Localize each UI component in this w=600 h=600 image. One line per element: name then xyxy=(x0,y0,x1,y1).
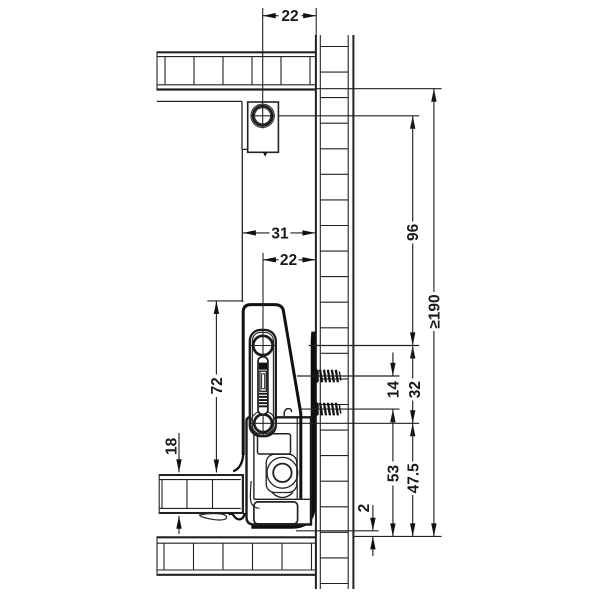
svg-text:53: 53 xyxy=(385,465,402,483)
svg-text:22: 22 xyxy=(281,8,298,25)
svg-text:18: 18 xyxy=(164,437,181,455)
svg-text:96: 96 xyxy=(405,223,422,241)
svg-text:22: 22 xyxy=(280,252,297,269)
svg-text:72: 72 xyxy=(209,377,226,394)
svg-text:≥190: ≥190 xyxy=(426,294,443,328)
svg-text:47.5: 47.5 xyxy=(406,463,423,494)
svg-text:2: 2 xyxy=(356,504,373,513)
svg-text:32: 32 xyxy=(407,381,424,398)
svg-text:31: 31 xyxy=(271,225,289,242)
svg-text:14: 14 xyxy=(385,381,402,399)
